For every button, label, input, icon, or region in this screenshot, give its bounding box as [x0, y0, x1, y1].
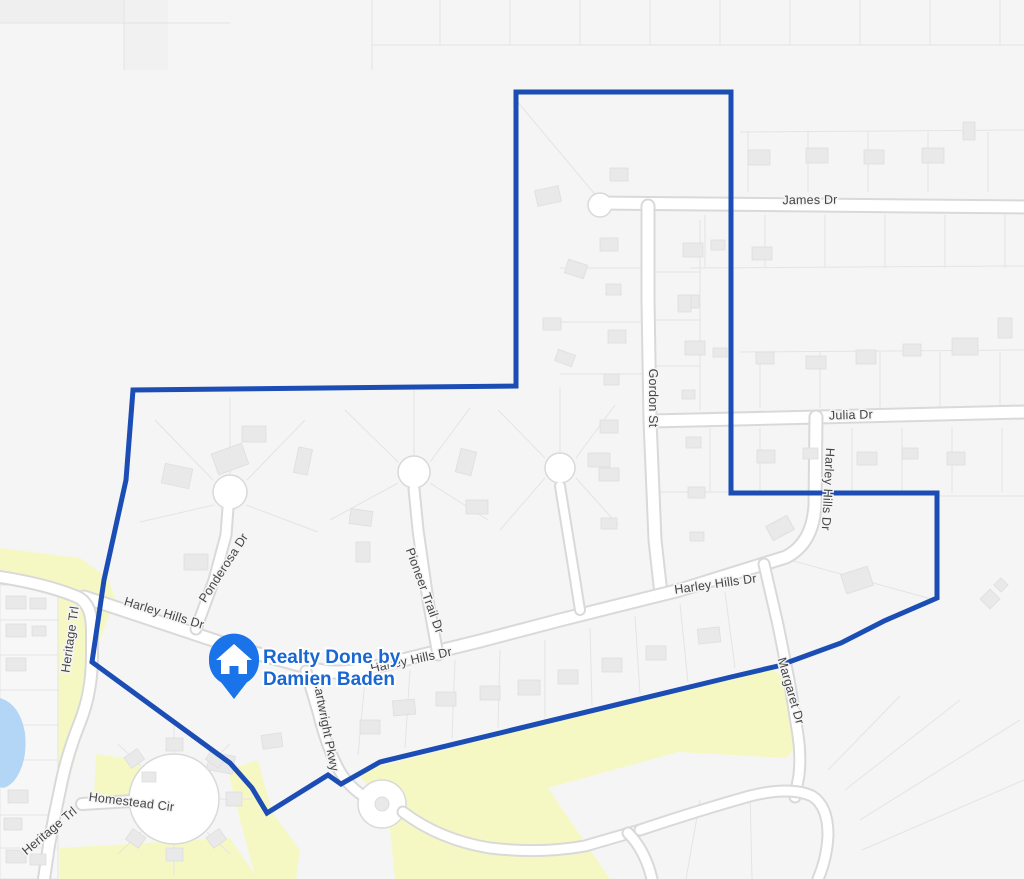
- street-label-james: James Dr: [782, 193, 837, 207]
- street-label-gordon: Gordon St: [646, 369, 660, 428]
- marker-label-line2[interactable]: Damien Baden: [263, 669, 395, 690]
- land-block: [0, 0, 124, 23]
- marker-label-line1[interactable]: Realty Done by: [263, 647, 401, 668]
- street-label-julia: Julia Dr: [829, 407, 873, 422]
- roundabout-island: [375, 797, 389, 811]
- land-block: [124, 0, 168, 70]
- map-canvas[interactable]: James Dr Julia Dr Gordon St Harley Hills…: [0, 0, 1024, 879]
